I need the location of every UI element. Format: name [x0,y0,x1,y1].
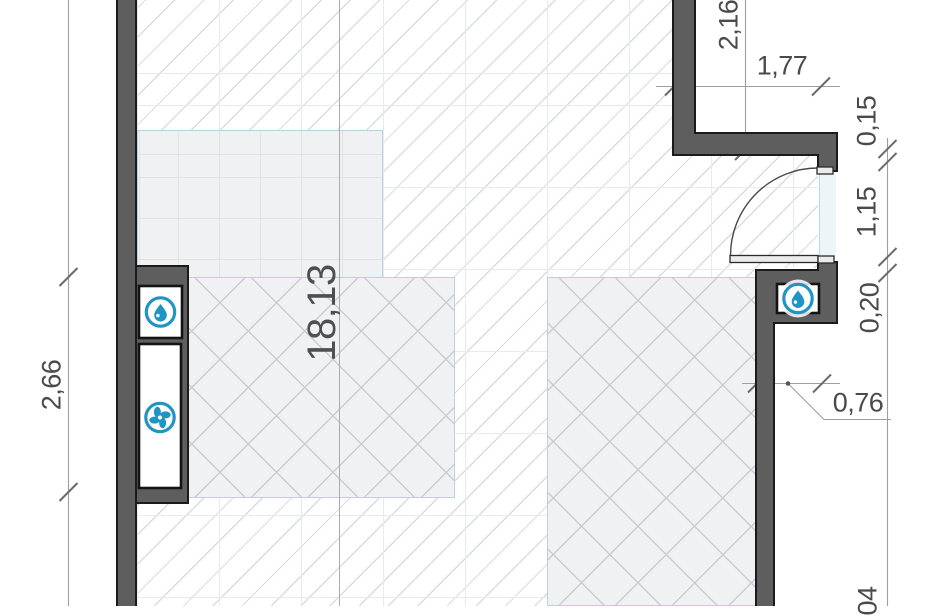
niches [139,284,819,488]
water-drop-icon [142,293,180,331]
dim-label-115: 1,15 [854,187,881,238]
room-area-label: 18,13 [302,264,342,362]
dim-label-177: 1,77 [757,53,808,80]
dim-label-left-266: 2,66 [39,360,66,411]
fan-icon [141,399,179,437]
dim-label-020: 0,20 [857,283,884,334]
dim-label-076: 0,76 [833,390,884,417]
door-leaf [730,256,818,263]
dim-label-015: 0,15 [854,96,881,147]
door-swing-arc [731,168,819,255]
water-drop-icon-right [779,280,817,318]
door-opening [819,174,836,256]
door-jamb-plate-top [817,167,833,174]
door-jamb-plate-bottom [818,256,834,263]
dim-label-216: 2,16 [716,0,743,50]
leader-dot [786,381,791,386]
walls [117,0,837,606]
wall-top-right [673,0,837,171]
wall-left [117,0,136,606]
door-parts [730,167,834,263]
floor-plan-canvas: 2,66 18,13 2,16 1,77 0,15 1,15 0,20 0,76… [0,0,926,606]
plan-drawing [0,0,926,606]
dim-label-partial: 04 [855,586,882,615]
